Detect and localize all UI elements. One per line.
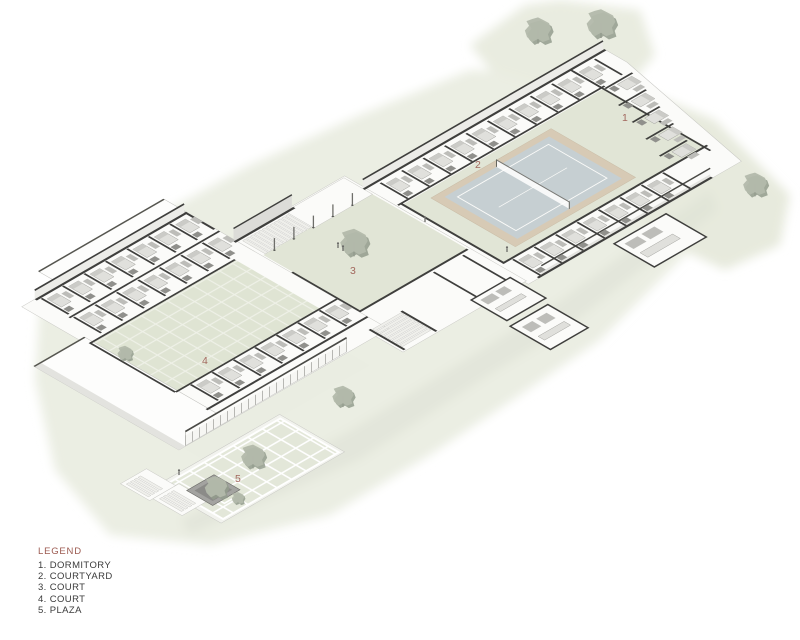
legend-item: 2. COURTYARD [38, 571, 113, 582]
plan-label-5: 5 [235, 473, 241, 485]
legend-item: 4. COURT [38, 594, 113, 605]
legend-item: 5. PLAZA [38, 605, 113, 616]
plan-label-3: 3 [350, 265, 356, 277]
plan-label-2: 2 [475, 159, 481, 171]
plan-label-1: 1 [622, 112, 628, 124]
legend: LEGEND 1. DORMITORY 2. COURTYARD 3. COUR… [38, 546, 113, 616]
legend-item: 1. DORMITORY [38, 560, 113, 571]
plan-label-4: 4 [202, 355, 208, 367]
legend-title: LEGEND [38, 546, 113, 557]
legend-item: 3. COURT [38, 582, 113, 593]
axonometric-drawing [0, 0, 800, 640]
architectural-axonometric-view: 1 2 3 4 5 LEGEND 1. DORMITORY 2. COURTYA… [0, 0, 800, 640]
